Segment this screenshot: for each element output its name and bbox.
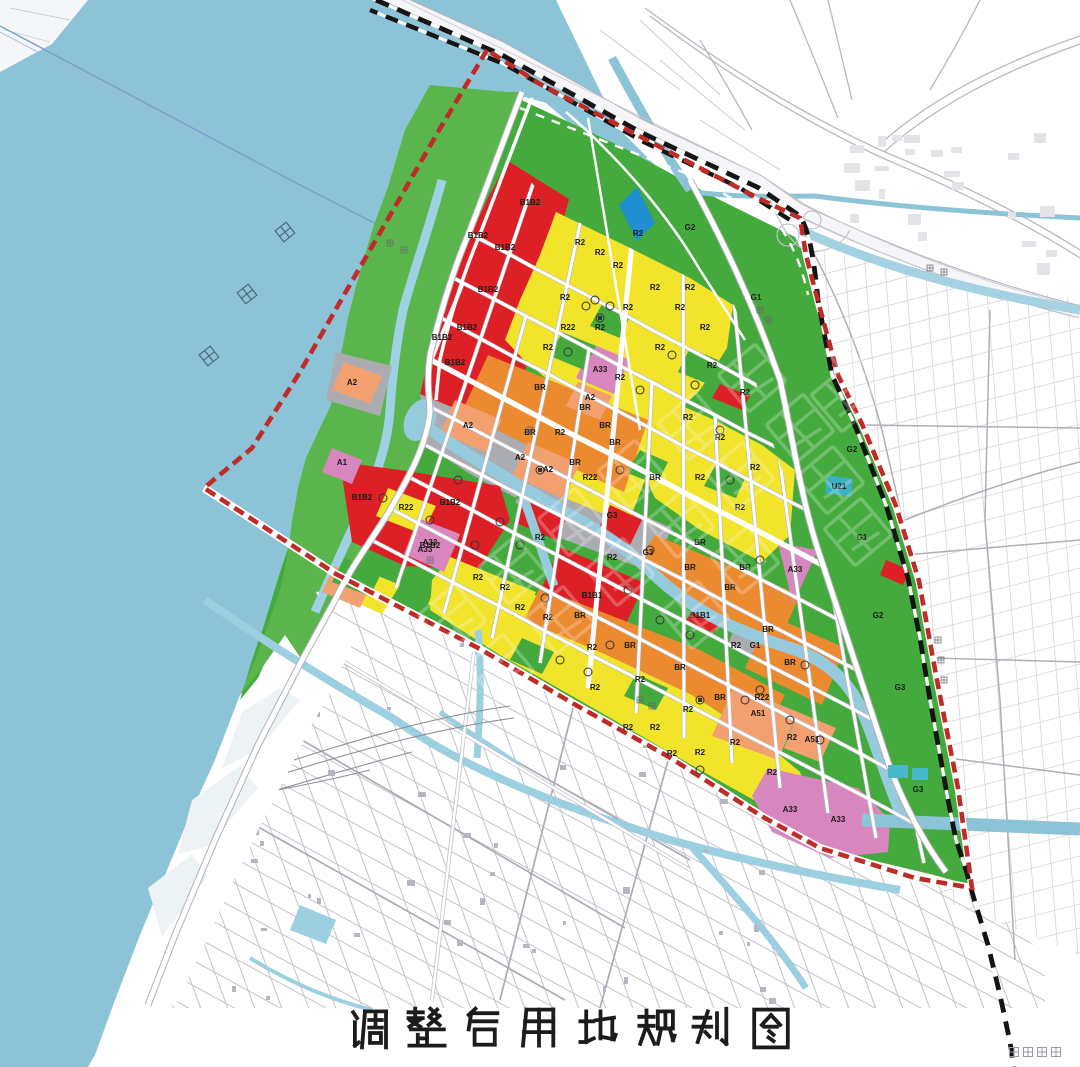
svg-text:R2: R2 [543, 343, 554, 352]
svg-text:A33: A33 [418, 545, 433, 554]
svg-text:B1B2: B1B2 [495, 243, 516, 252]
svg-text:G3: G3 [643, 548, 654, 557]
svg-text:R2: R2 [683, 705, 694, 714]
svg-text:BR: BR [579, 403, 591, 412]
svg-text:G2: G2 [847, 445, 858, 454]
svg-text:R22: R22 [583, 473, 598, 482]
svg-text:R2: R2 [675, 303, 686, 312]
svg-text:R2: R2 [607, 553, 618, 562]
svg-text:R22: R22 [755, 693, 770, 702]
svg-text:A2: A2 [463, 421, 474, 430]
svg-text:R22: R22 [561, 323, 576, 332]
svg-text:BR: BR [599, 421, 611, 430]
svg-text:A1: A1 [337, 458, 348, 467]
svg-text:B1B2: B1B2 [520, 198, 541, 207]
svg-text:B1B1: B1B1 [582, 591, 603, 600]
svg-text:R2: R2 [623, 723, 634, 732]
svg-text:R2: R2 [650, 723, 661, 732]
svg-text:A51: A51 [805, 735, 820, 744]
svg-text:B1B2: B1B2 [468, 231, 489, 240]
svg-text:G3: G3 [895, 683, 906, 692]
svg-text:BR: BR [534, 383, 546, 392]
svg-text:B1B2: B1B2 [440, 498, 461, 507]
svg-text:BR: BR [684, 563, 696, 572]
svg-text:R2: R2 [787, 733, 798, 742]
svg-text:BR: BR [569, 458, 581, 467]
svg-text:R2: R2 [595, 323, 606, 332]
svg-text:BR: BR [714, 693, 726, 702]
svg-text:B1B2: B1B2 [457, 323, 478, 332]
svg-text:R2: R2 [750, 463, 761, 472]
svg-text:R2: R2 [695, 748, 706, 757]
svg-text:A33: A33 [788, 565, 803, 574]
svg-text:A2: A2 [347, 378, 358, 387]
svg-text:R22: R22 [399, 503, 414, 512]
svg-text:R2: R2 [515, 603, 526, 612]
svg-text:R2: R2 [595, 248, 606, 257]
svg-text:R2: R2 [655, 343, 666, 352]
svg-text:R2: R2 [587, 643, 598, 652]
svg-text:R2: R2 [730, 738, 741, 747]
svg-text:A33: A33 [593, 365, 608, 374]
svg-text:B1B2: B1B2 [352, 493, 373, 502]
svg-text:G3: G3 [607, 511, 618, 520]
svg-text:R2: R2 [685, 283, 696, 292]
svg-text:R2: R2 [667, 749, 678, 758]
svg-text:R2: R2 [650, 283, 661, 292]
svg-text:A33: A33 [831, 815, 846, 824]
svg-text:R2: R2 [635, 675, 646, 684]
svg-text:BR: BR [784, 658, 796, 667]
svg-text:B1B2: B1B2 [445, 358, 466, 367]
svg-text:R2: R2 [695, 473, 706, 482]
svg-text:BR: BR [624, 641, 636, 650]
svg-text:B1B2: B1B2 [478, 285, 499, 294]
svg-text:A2: A2 [543, 465, 554, 474]
svg-text:B1B2: B1B2 [432, 333, 453, 342]
svg-text:G1: G1 [750, 641, 761, 650]
svg-text:R2: R2 [575, 238, 586, 247]
svg-text:A2: A2 [515, 453, 526, 462]
svg-text:BR: BR [674, 663, 686, 672]
svg-text:G2: G2 [685, 223, 696, 232]
svg-text:R2: R2 [560, 293, 571, 302]
svg-text:BR: BR [762, 625, 774, 634]
svg-text:R2: R2 [767, 768, 778, 777]
svg-text:A51: A51 [751, 709, 766, 718]
svg-text:R2: R2 [633, 229, 644, 238]
svg-text:R2: R2 [535, 533, 546, 542]
svg-text:G3: G3 [913, 785, 924, 794]
svg-text:R2: R2 [623, 303, 634, 312]
svg-text:A2: A2 [585, 393, 596, 402]
svg-text:R2: R2 [700, 323, 711, 332]
svg-text:R2: R2 [707, 361, 718, 370]
svg-text:G1: G1 [751, 293, 762, 302]
svg-text:R2: R2 [555, 428, 566, 437]
svg-text:BR: BR [609, 438, 621, 447]
svg-text:R2: R2 [590, 683, 601, 692]
svg-text:R2: R2 [613, 261, 624, 270]
svg-text:A33: A33 [783, 805, 798, 814]
svg-text:G2: G2 [873, 611, 884, 620]
svg-text:R2: R2 [615, 373, 626, 382]
svg-text:R2: R2 [731, 641, 742, 650]
